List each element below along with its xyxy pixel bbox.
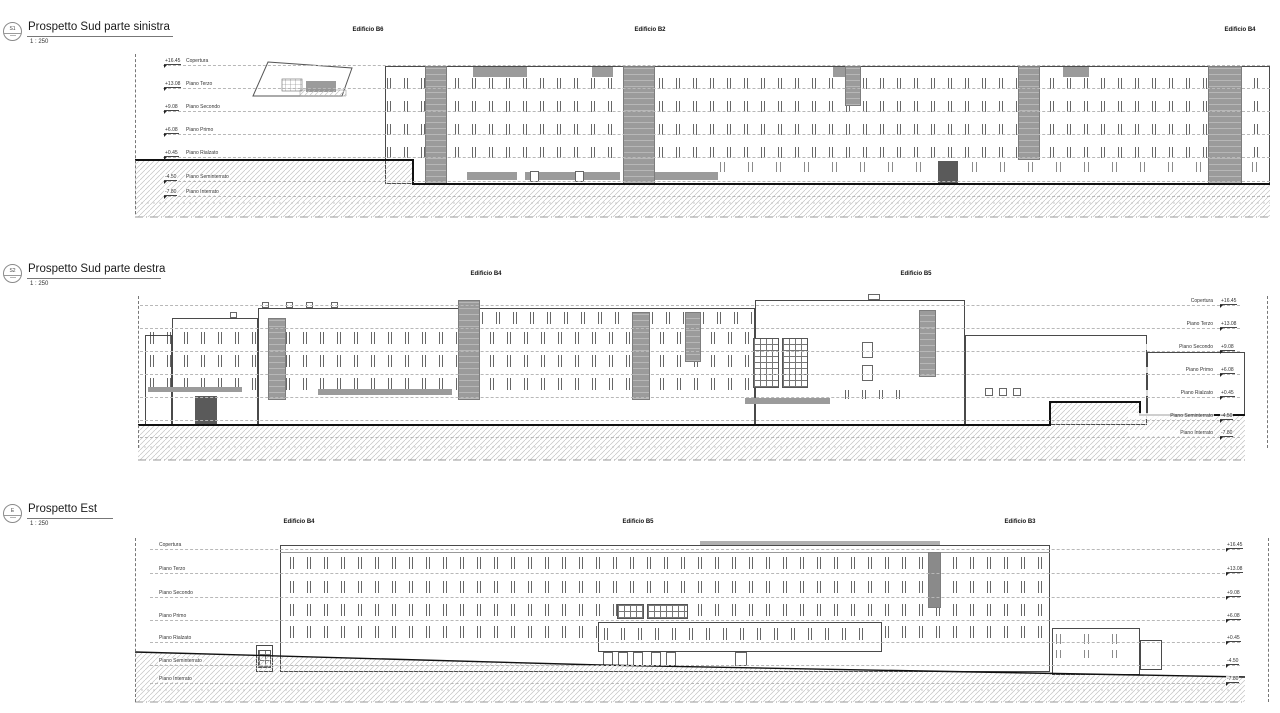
marker-divider — [4, 515, 21, 516]
level-elevation: +16.45 — [164, 58, 181, 65]
level-elevation: -7.80 — [1220, 430, 1233, 437]
level-label: Piano Rialzato — [1128, 390, 1214, 396]
ground-hatch — [135, 160, 1270, 217]
level-line — [163, 111, 1270, 112]
level-line — [150, 549, 1240, 550]
level-label: Piano Secondo — [158, 590, 194, 596]
level-elevation: +13.08 — [164, 81, 181, 88]
level-elevation: -4.50 — [164, 174, 177, 181]
section-cut-line — [1267, 296, 1268, 448]
level-line — [163, 134, 1270, 135]
level-label: Piano Terzo — [185, 81, 213, 87]
marker-sub-line — [10, 517, 16, 518]
level-label: Piano Primo — [1128, 367, 1214, 373]
view-marker-e-label: E — [11, 509, 14, 514]
level-line — [163, 65, 1270, 66]
level-label: Piano Rialzato — [185, 150, 219, 156]
level-line — [150, 665, 1240, 666]
level-label: Copertura — [185, 58, 209, 64]
level-label: Copertura — [158, 542, 182, 548]
level-elevation: +16.45 — [1220, 298, 1237, 305]
view-marker-s1: S1 — [3, 22, 22, 41]
building-label-b3: Edificio B3 — [1004, 519, 1035, 525]
section-cut-line — [1268, 538, 1269, 702]
level-label: Piano Terzo — [158, 566, 186, 572]
level-line — [140, 351, 1240, 352]
panel1-title: Prospetto Sud parte sinistra — [28, 21, 170, 33]
level-elevation: +6.08 — [1226, 613, 1241, 620]
panel3-title: Prospetto Est — [28, 503, 97, 515]
marker-divider — [4, 33, 21, 34]
level-elevation: -7.80 — [1226, 676, 1239, 683]
level-label: Piano Secondo — [185, 104, 221, 110]
level-line — [140, 420, 1240, 421]
level-label: Piano Seminterrato — [185, 174, 230, 180]
level-line — [163, 196, 1270, 197]
level-label: Piano Interrato — [158, 676, 193, 682]
building-label-b4: Edificio B4 — [283, 519, 314, 525]
level-elevation: +6.08 — [1220, 367, 1235, 374]
title-underline — [27, 278, 161, 279]
building-label-b5: Edificio B5 — [900, 271, 931, 277]
building-label-b6: Edificio B6 — [352, 27, 383, 33]
panel3-scale: 1 : 250 — [30, 521, 48, 527]
panel1-scale: 1 : 250 — [30, 39, 48, 45]
level-elevation: +9.08 — [1220, 344, 1235, 351]
level-label: Copertura — [1128, 298, 1214, 304]
level-line — [150, 573, 1240, 574]
title-underline — [27, 518, 113, 519]
level-elevation: +9.08 — [1226, 590, 1241, 597]
level-label: Piano Terzo — [1128, 321, 1214, 327]
level-line — [163, 157, 1270, 158]
level-elevation: +13.08 — [1220, 321, 1237, 328]
ground-hatch — [135, 652, 1245, 702]
level-elevation: -4.50 — [1220, 413, 1233, 420]
panel2-title: Prospetto Sud parte destra — [28, 263, 165, 275]
marker-sub-line — [10, 277, 16, 278]
level-label: Piano Primo — [185, 127, 214, 133]
level-line — [140, 397, 1240, 398]
level-elevation: +9.08 — [164, 104, 179, 111]
level-elevation: +13.08 — [1226, 566, 1243, 573]
level-label: Piano Secondo — [1128, 344, 1214, 350]
view-marker-e: E — [3, 504, 22, 523]
section-cut-line — [135, 538, 136, 702]
level-elevation: +0.45 — [1226, 635, 1241, 642]
marker-sub-line — [10, 35, 16, 36]
view-marker-s2: S2 — [3, 264, 22, 283]
level-line — [163, 88, 1270, 89]
level-line — [150, 597, 1240, 598]
building-label-b4: Edificio B4 — [1224, 27, 1255, 33]
title-underline — [27, 36, 173, 37]
level-elevation: +0.45 — [164, 150, 179, 157]
level-label: Piano Interrato — [185, 189, 220, 195]
building-label-b5: Edificio B5 — [622, 519, 653, 525]
level-line — [140, 328, 1240, 329]
level-label: Piano Seminterrato — [1128, 413, 1214, 419]
level-elevation: -4.50 — [1226, 658, 1239, 665]
level-line — [150, 620, 1240, 621]
view-marker-s1-label: S1 — [9, 27, 15, 32]
level-elevation: +6.08 — [164, 127, 179, 134]
building-label-b4: Edificio B4 — [470, 271, 501, 277]
level-elevation: +16.45 — [1226, 542, 1243, 549]
marker-divider — [4, 275, 21, 276]
level-line — [140, 374, 1240, 375]
ground-hatch — [138, 402, 1245, 460]
level-label: Piano Primo — [158, 613, 187, 619]
section-cut-line — [135, 54, 136, 214]
building-label-b2: Edificio B2 — [634, 27, 665, 33]
level-line — [140, 437, 1240, 438]
view-marker-s2-label: S2 — [9, 269, 15, 274]
level-line — [150, 642, 1240, 643]
level-label: Piano Interrato — [1128, 430, 1214, 436]
level-elevation: -7.80 — [164, 189, 177, 196]
level-label: Piano Seminterrato — [158, 658, 203, 664]
section-cut-line — [138, 296, 139, 448]
level-line — [163, 181, 1270, 182]
level-elevation: +0.45 — [1220, 390, 1235, 397]
level-label: Piano Rialzato — [158, 635, 192, 641]
elevation-sheet: S1 Prospetto Sud parte sinistra 1 : 250 … — [0, 0, 1280, 713]
level-line — [140, 305, 1240, 306]
level-line — [150, 683, 1240, 684]
panel2-scale: 1 : 250 — [30, 281, 48, 287]
